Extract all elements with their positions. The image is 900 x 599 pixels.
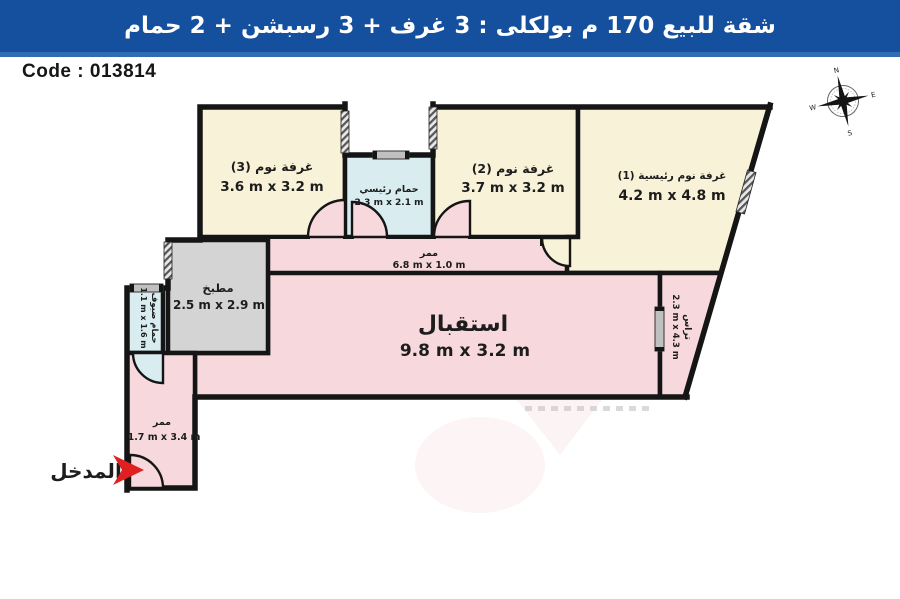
compass-e: E [870,91,876,100]
bedroom3-name: غرفة نوم (3) [231,159,314,175]
compass-s: S [847,129,854,138]
window-icon-bedroom-3-shaft [341,111,349,153]
master-bedroom-name: غرفة نوم رئيسية (1) [618,170,727,182]
reception-dims: 9.8 m x 3.2 m [400,341,530,361]
master-bath-dims: 2.3 m x 2.1 m [355,198,424,208]
bedroom3-dims: 3.6 m x 3.2 m [220,179,323,195]
master-bedroom-dims: 4.2 m x 4.8 m [618,188,725,204]
window-icon-terrace [655,307,664,351]
entrance-label: المدخل [50,459,122,483]
reception-name: استقبال [418,312,508,337]
guest-bath-dims: 1.1 m x 1.6 m [139,287,148,348]
window-icon-kitchen [164,242,172,279]
room-kitchen [168,240,268,353]
compass-n: N [833,66,840,75]
terrace-dims: 2.3 m x 4.3 m [670,294,680,359]
corridor-name: ممر [419,248,438,259]
entry-corridor-name: ممر [152,417,171,428]
kitchen-dims: 2.5 m x 2.9 m [173,298,265,312]
window-icon-master-bath [373,151,409,159]
master-bath-name: حمام رئيسي [359,184,418,195]
terrace-name: تراس [682,314,693,340]
floor-plan-svg: MAX AVALON [0,0,900,599]
guest-bath-name: حمام ضيوف [149,292,159,343]
compass-w: W [809,103,818,112]
entry-corridor-dims: 1.7 m x 3.4 m [128,432,201,443]
floor-plan-page: شقة للبيع 170 م بولكلى : 3 غرف + 3 رسبشن… [0,0,900,599]
bedroom2-name: غرفة نوم (2) [472,161,555,177]
corridor-dims: 6.8 m x 1.0 m [393,260,466,271]
compass-rose-icon: N E S W [802,60,883,144]
kitchen-name: مطبخ [202,281,233,295]
window-icon-bedroom-2-shaft [429,107,437,149]
bedroom2-dims: 3.7 m x 3.2 m [461,180,564,196]
